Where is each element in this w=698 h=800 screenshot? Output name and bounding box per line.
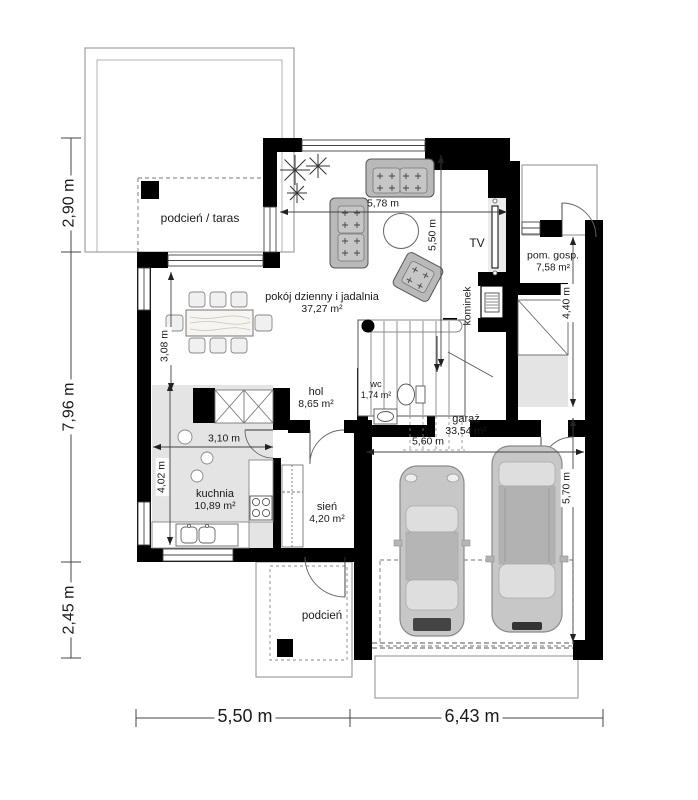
vestibule-area: 4,20 m² [309, 514, 344, 527]
utility-window [522, 222, 540, 234]
fireplace [481, 286, 503, 318]
room-label-living: pokój dzienny i jadalnia 37,27 m² [265, 291, 379, 317]
dim-dining-depth: 3,08 m [159, 327, 172, 365]
living-top-window [302, 140, 425, 151]
dim-exterior-left-bottom: 2,45 m [59, 583, 78, 638]
armchair [391, 251, 444, 303]
kitchen-area: 10,89 m² [194, 501, 235, 514]
room-label-hall: hol 8,65 m² [298, 386, 333, 412]
plant [280, 154, 330, 203]
garage-door-line [372, 643, 573, 648]
hall-name: hol [298, 386, 333, 399]
tv-unit [492, 199, 498, 275]
car-suv [486, 446, 568, 632]
dim-exterior-left-top: 2,90 m [59, 176, 78, 231]
wc-area: 1,74 m² [361, 390, 392, 401]
vestibule-wardrobe [282, 465, 303, 547]
fireplace-label: kominek [462, 286, 475, 325]
utility-name: pom. gosp. [527, 250, 579, 263]
floor-plan-canvas [0, 0, 698, 800]
garage-name: garaż [445, 413, 486, 426]
sofa-top [366, 159, 434, 197]
dim-garage-width: 5,60 m [412, 436, 444, 449]
room-label-wc: wc 1,74 m² [361, 379, 392, 401]
kitchen-window [163, 549, 233, 561]
sofa-left [330, 198, 368, 268]
room-label-kitchen: kuchnia 10,89 m² [194, 488, 235, 514]
room-label-utility: pom. gosp. 7,58 m² [527, 250, 579, 275]
dim-living-depth: 5,50 m [427, 216, 440, 254]
dining-terrace-window [168, 255, 263, 266]
tv-label: TV [469, 236, 484, 250]
dim-living-width: 5,78 m [367, 198, 399, 211]
dim-exterior-left-middle: 7,96 m [59, 380, 78, 435]
stove [250, 496, 272, 520]
vestibule-name: sień [309, 501, 344, 514]
floor-plan: podcień / taras pokój dzienny i jadalnia… [0, 0, 698, 800]
living-name: pokój dzienny i jadalnia [265, 291, 379, 304]
room-label-vestibule: sień 4,20 m² [309, 501, 344, 527]
terrace-door-window [264, 207, 276, 252]
hall-area: 8,65 m² [298, 399, 333, 412]
room-label-terrace: podcień / taras [161, 211, 240, 225]
pantry-closet [215, 390, 273, 423]
left-upper-window [138, 268, 150, 310]
porch-column [277, 639, 293, 657]
wc-name: wc [361, 379, 392, 390]
kitchen-name: kuchnia [194, 488, 235, 501]
utility-area: 7,58 m² [527, 262, 579, 274]
porch-name: podcień [302, 610, 342, 624]
living-area: 37,27 m² [265, 304, 379, 317]
stair-newel [362, 320, 375, 333]
room-label-porch: podcień [302, 610, 342, 624]
dim-kitchen-width: 3,10 m [208, 433, 240, 446]
terrace-name: podcień / taras [161, 211, 240, 225]
room-label-garage: garaż 33,54 m² [445, 413, 486, 439]
dim-exterior-bottom-left: 5,50 m [214, 706, 275, 728]
dim-garage-depth: 5,70 m [561, 469, 574, 507]
terrace-column [141, 181, 159, 199]
driveway-outline [375, 656, 578, 698]
vestibule-door [310, 430, 344, 464]
left-lower-window [138, 502, 150, 545]
dining-set [166, 292, 272, 353]
coffee-table [384, 214, 419, 249]
dim-utility-depth: 4,40 m [561, 284, 574, 322]
garage-area: 33,54 m² [445, 426, 486, 439]
dim-kitchen-depth: 4,02 m [156, 458, 169, 496]
dim-exterior-bottom-right: 6,43 m [441, 706, 502, 728]
entry-door [305, 557, 345, 597]
dining-table [186, 310, 253, 336]
wc-sink [374, 409, 397, 424]
car-sports [394, 466, 470, 636]
toilet-bowl [398, 384, 415, 405]
toilet-tank [416, 386, 425, 403]
kitchen-sink [176, 524, 238, 546]
